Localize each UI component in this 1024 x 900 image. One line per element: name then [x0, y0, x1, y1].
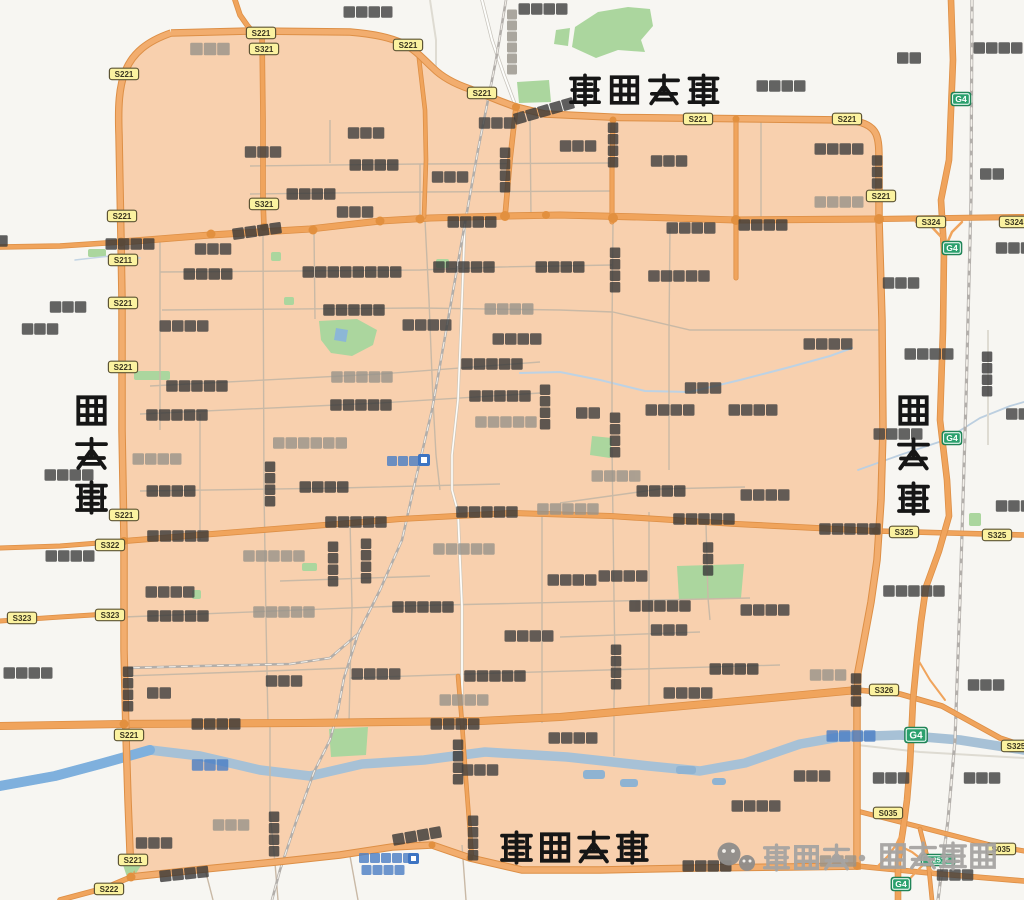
svg-text:S321: S321 [255, 200, 274, 209]
svg-text:S325: S325 [1007, 742, 1024, 751]
svg-text:S221: S221 [115, 511, 134, 520]
svg-text:S221: S221 [113, 212, 132, 221]
svg-text:S221: S221 [399, 41, 418, 50]
svg-text:S221: S221 [473, 89, 492, 98]
svg-text:S324: S324 [922, 218, 941, 227]
svg-text:S221: S221 [114, 363, 133, 372]
svg-text:S326: S326 [875, 686, 894, 695]
svg-text:S325: S325 [988, 531, 1007, 540]
svg-text:S221: S221 [689, 115, 708, 124]
svg-text:S321: S321 [255, 45, 274, 54]
svg-text:G4: G4 [909, 731, 923, 742]
svg-text:S222: S222 [100, 885, 119, 894]
svg-text:G4: G4 [946, 433, 958, 443]
svg-text:S324: S324 [1005, 218, 1024, 227]
svg-text:S323: S323 [101, 611, 120, 620]
svg-text:S221: S221 [115, 70, 134, 79]
svg-text:S211: S211 [114, 256, 133, 265]
svg-text:S221: S221 [120, 731, 139, 740]
svg-text:S221: S221 [114, 299, 133, 308]
svg-text:S325: S325 [895, 528, 914, 537]
svg-text:S322: S322 [101, 541, 120, 550]
svg-text:S221: S221 [252, 29, 271, 38]
svg-text:S221: S221 [872, 192, 891, 201]
svg-text:G4: G4 [895, 879, 907, 889]
svg-text:S221: S221 [838, 115, 857, 124]
svg-text:S221: S221 [124, 856, 143, 865]
svg-text:S323: S323 [13, 614, 32, 623]
svg-text:G4: G4 [946, 243, 958, 253]
svg-text:G4: G4 [955, 94, 967, 104]
svg-text:S035: S035 [879, 809, 898, 818]
